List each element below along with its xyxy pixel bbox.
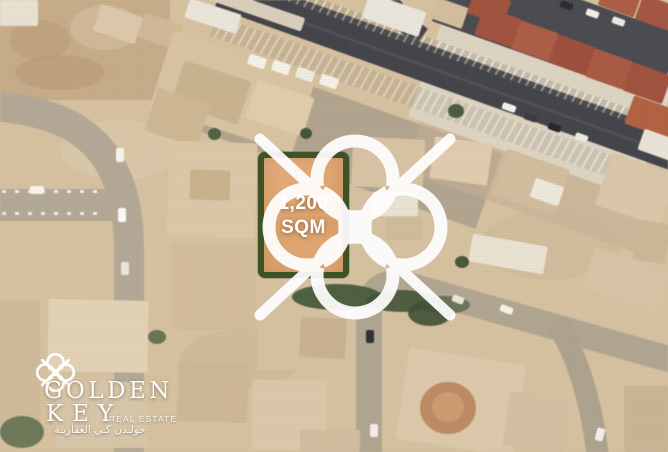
parking-dashes (2, 212, 102, 215)
brand-name-arabic: جولـدن كـي العقاريـة (44, 424, 156, 436)
car (121, 262, 129, 275)
parking-dashes (2, 190, 102, 193)
building (177, 361, 249, 423)
building (502, 391, 572, 452)
car (370, 424, 378, 437)
car (501, 102, 517, 113)
building (0, 0, 38, 26)
car (499, 304, 514, 315)
tree (148, 330, 166, 344)
car (585, 8, 600, 19)
building (624, 386, 668, 452)
car (594, 427, 605, 442)
roof (635, 0, 668, 32)
building (300, 430, 360, 452)
car (116, 148, 124, 162)
brand-tagline: REAL ESTATE (109, 414, 177, 424)
tree (208, 128, 221, 140)
trees (0, 416, 44, 448)
car (547, 122, 562, 133)
brand-watermark-icon (235, 107, 475, 347)
circular-court-inner (432, 392, 464, 422)
satellite-listing-image: 1,200 SQM GOLDEN KEY REAL ESTATE (0, 0, 668, 452)
building (468, 234, 548, 275)
building (93, 4, 143, 44)
car (30, 186, 44, 194)
car (118, 208, 126, 222)
brand-name-line1: GOLDEN (44, 380, 173, 403)
building (633, 220, 668, 265)
building (189, 169, 230, 200)
car (559, 0, 574, 11)
roof (622, 62, 668, 104)
building (429, 0, 468, 29)
car (523, 112, 538, 123)
car (611, 16, 626, 27)
